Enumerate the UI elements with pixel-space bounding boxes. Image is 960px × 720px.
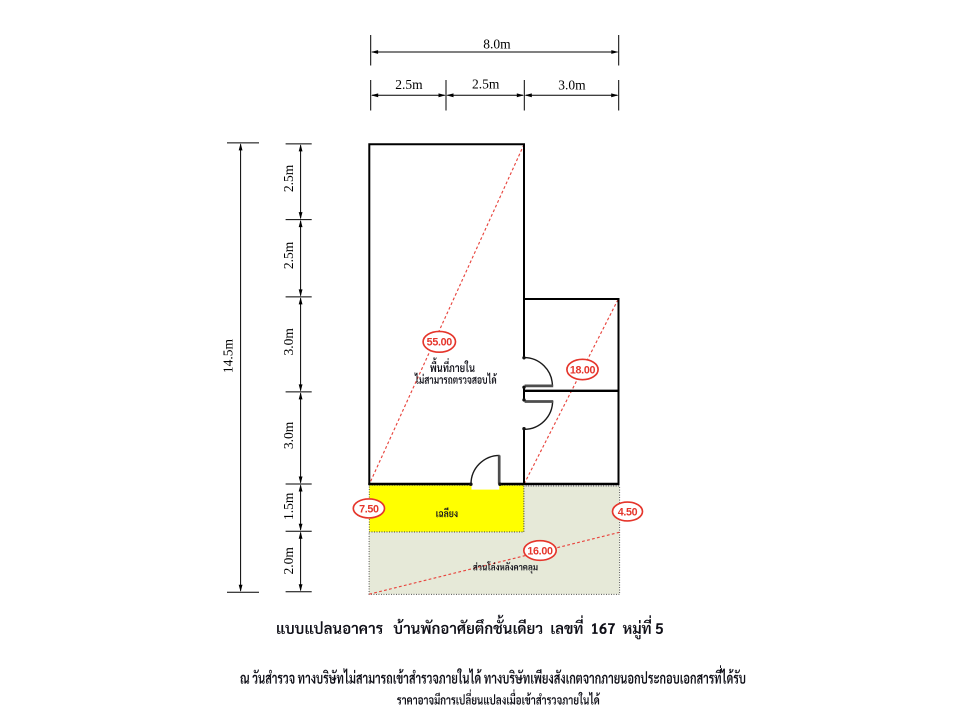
svg-text:55.00: 55.00 [427,337,453,349]
svg-text:2.5m: 2.5m [395,77,423,92]
svg-text:3.0m: 3.0m [558,78,586,93]
svg-text:8.0m: 8.0m [483,37,511,52]
svg-text:1.5m: 1.5m [281,492,296,520]
svg-text:2.0m: 2.0m [281,547,296,575]
svg-text:2.5m: 2.5m [281,241,296,269]
svg-text:3.0m: 3.0m [281,421,296,449]
svg-text:3.0m: 3.0m [281,328,296,356]
svg-text:16.00: 16.00 [527,545,553,557]
svg-text:2.5m: 2.5m [281,164,296,192]
svg-text:2.5m: 2.5m [472,77,500,92]
svg-text:14.5m: 14.5m [220,338,235,373]
svg-text:4.50: 4.50 [618,506,638,518]
svg-text:7.50: 7.50 [359,503,379,515]
svg-text:18.00: 18.00 [570,364,596,376]
